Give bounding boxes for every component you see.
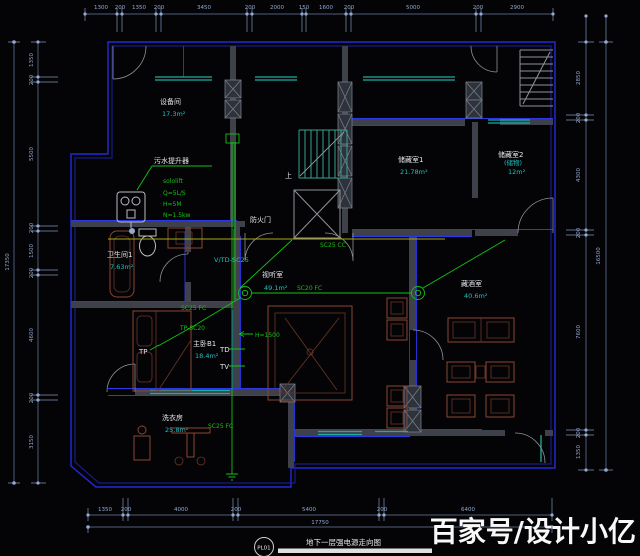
dim-left-8: 3150	[29, 435, 35, 449]
dim-right-2: 4300	[576, 168, 582, 182]
floor-plan-drawing: 1300 200 1350 200 3450 200 2000 150 1600…	[0, 0, 640, 556]
room-area-bedroom: 18.4m²	[195, 352, 219, 360]
wire-label-av: SC20 FC	[297, 285, 322, 292]
wire-label-h1500: H=1500	[255, 332, 280, 339]
dim-left-3: 200	[29, 222, 35, 233]
dim-top-12: 2900	[510, 5, 524, 11]
title-underline-bar	[278, 549, 432, 554]
wire-label-vtd: V/TD-SC25	[214, 256, 249, 264]
dim-right-0: 2850	[576, 71, 582, 85]
dim-bottom-4: 5400	[302, 507, 316, 513]
dim-left-4: 1500	[29, 244, 35, 258]
room-name-storage2: 储藏室2	[498, 150, 523, 159]
pump-spec-1: Q=5L/S	[163, 190, 186, 197]
td-label: TD	[219, 346, 230, 354]
red-marker-dot	[129, 228, 135, 234]
wire-label-cc: SC25 CC	[320, 242, 346, 249]
stairs-top-right	[520, 50, 553, 106]
room-name-equipment: 设备间	[160, 97, 181, 106]
room-area-storage1: 21.78m²	[400, 168, 428, 176]
dim-right-3: 200	[576, 227, 582, 238]
dim-left-6: 4600	[29, 328, 35, 342]
wire-label-tp-line: TP-SC20	[179, 325, 205, 332]
dim-top-4: 3450	[197, 5, 211, 11]
dim-right-4: 7600	[576, 325, 582, 339]
dim-right-1: 200	[576, 112, 582, 123]
tp-label: TP	[138, 348, 148, 356]
structural-columns	[225, 80, 482, 432]
pump-title-label: 污水提升器	[154, 156, 189, 165]
dim-top-5: 200	[245, 5, 256, 11]
dim-left-0: 1350	[29, 53, 35, 67]
room-name-wine: 藏酒室	[461, 279, 482, 288]
room-area-bath: 7.63m²	[110, 263, 134, 271]
room-name-laundry: 洗衣房	[162, 413, 183, 422]
pump-spec-3: N=1.5kw	[163, 212, 191, 219]
dim-left-7: 200	[29, 392, 35, 403]
dim-top-2: 1350	[132, 5, 146, 11]
room-name-av: 视听室	[262, 270, 283, 279]
dim-bottom-6: 6400	[461, 507, 475, 513]
dim-bottom-5: 200	[377, 507, 388, 513]
dimension-chain-top: 1300 200 1350 200 3450 200 2000 150 1600…	[83, 5, 554, 32]
dim-bottom-3: 200	[231, 507, 242, 513]
wire-label-bed: SC25 FC	[181, 305, 206, 312]
room-area-equipment: 17.3m²	[162, 110, 186, 118]
chairs	[387, 298, 407, 428]
dim-top-0: 1300	[94, 5, 108, 11]
dim-top-10: 5000	[406, 5, 420, 11]
dim-bottom-1: 200	[121, 507, 132, 513]
dim-top-3: 200	[154, 5, 165, 11]
room-sub-storage2: (储物)	[504, 158, 522, 167]
room-name-storage1: 储藏室1	[398, 155, 423, 164]
room-area-laundry: 25.8m²	[165, 426, 189, 434]
dimension-chain-right: 2850 200 4300 200 7600 200 1350 16500	[566, 14, 613, 471]
dim-bottom-0: 1350	[98, 507, 112, 513]
stairs-up-label: 上	[285, 171, 292, 180]
drawing-number: PL01	[257, 546, 270, 552]
room-area-wine: 40.6m²	[464, 292, 488, 300]
cad-floor-plan: 1300 200 1350 200 3450 200 2000 150 1600…	[0, 0, 640, 556]
dim-bottom-2: 4000	[174, 507, 188, 513]
room-area-storage2: 12m²	[508, 168, 526, 176]
dim-top-1: 200	[115, 5, 126, 11]
dim-left-5: 200	[29, 267, 35, 278]
title-block: PL01 地下一层强电源走向图	[255, 537, 433, 556]
room-area-av: 49.1m²	[264, 284, 288, 292]
dim-right-total: 16500	[596, 247, 602, 265]
watermark-text: 百家号/设计小亿	[430, 515, 636, 548]
dim-left-1: 200	[29, 74, 35, 85]
dim-left-2: 5500	[29, 147, 35, 161]
tv-label: TV	[219, 363, 229, 371]
dim-right-5: 200	[576, 427, 582, 438]
dim-top-6: 2000	[270, 5, 284, 11]
elevator-shaft	[294, 190, 340, 238]
dim-left-total: 17350	[5, 253, 11, 271]
dim-bottom-total: 17750	[311, 520, 329, 526]
dim-top-9: 200	[344, 5, 355, 11]
dim-top-8: 1600	[319, 5, 333, 11]
dim-top-11: 200	[473, 5, 484, 11]
dimension-chain-left: 1350 200 5500 200 1500 200 4600 200 3150…	[5, 40, 58, 485]
dim-top-7: 150	[299, 5, 310, 11]
drawing-title: 地下一层强电源走向图	[306, 537, 381, 547]
room-labels: 设备间 17.3m² 储藏室1 21.78m² 储藏室2 (储物) 12m² 卫…	[107, 97, 526, 434]
fire-door-label: 防火门	[250, 215, 271, 224]
pump-spec-0: sololift	[163, 178, 183, 185]
room-name-bath: 卫生间1	[107, 250, 132, 259]
wire-label-laundry: SC25 FC	[208, 423, 233, 430]
pump-spec-2: H=5M	[163, 201, 182, 208]
room-name-bedroom: 主卧B1	[193, 339, 216, 348]
dim-right-6: 1350	[576, 445, 582, 459]
wine-cabinets	[447, 318, 514, 417]
